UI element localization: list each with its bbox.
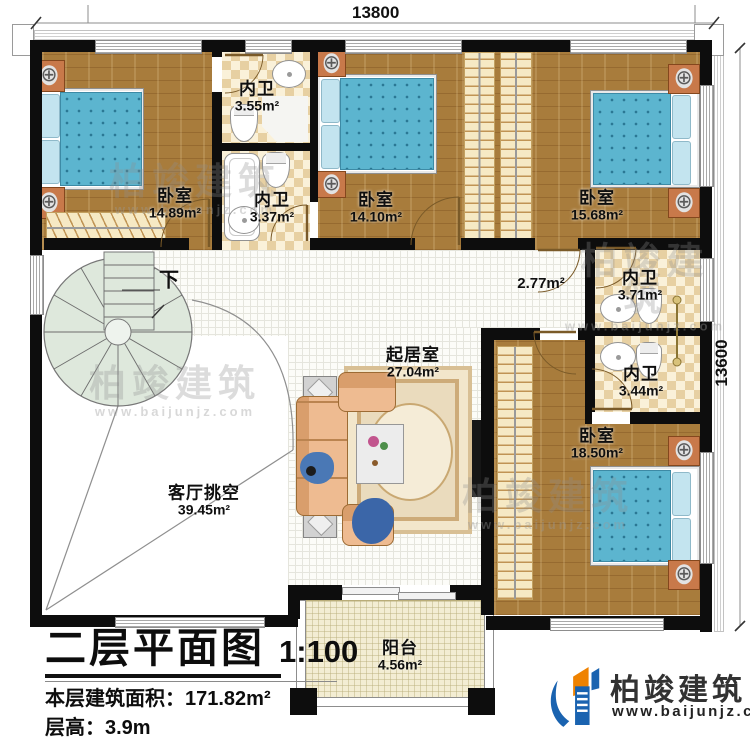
nightstand [668,64,700,94]
room-name: 卧室 [350,192,402,210]
plan-title: 二层平面图 [45,628,265,669]
wall [595,328,700,336]
pillow [40,140,60,184]
sliding-door [398,592,456,600]
pillow [672,518,691,562]
room-label-balcony: 阳台 4.56m² [378,640,422,673]
room-area: 18.50m² [571,446,623,461]
mattress [593,470,671,562]
room-area: 3.44m² [619,384,663,399]
room-area: 3.55m² [235,99,279,114]
room-label-bedroom-top-center: 卧室 14.10m² [350,192,402,225]
floor-height-value: 3.9m [105,717,151,739]
room-name: 客厅挑空 [168,485,240,503]
plan-scale: 1:100 [279,635,358,669]
wall [481,328,494,615]
room-label-hallway: 2.77m² [517,276,565,292]
title-block: 二层平面图 1:100 本层建筑面积：171.82m² 层高：3.9m [45,628,358,740]
nightstand [317,171,346,198]
pillow [672,141,691,185]
wall [212,52,222,57]
wall [630,412,700,424]
window [700,258,714,322]
room-label-bedroom-top-right: 卧室 15.68m² [571,190,623,223]
wall [585,250,595,412]
room-area: 27.04m² [386,365,440,380]
room-name: 卧室 [571,428,623,446]
sliding-door [342,587,400,595]
wardrobe [500,52,532,250]
room-area: 15.68m² [571,208,623,223]
floor-height-label: 层高： [45,717,105,739]
room-area: 4.56m² [378,658,422,673]
room-label-bedroom-bottom-right: 卧室 18.50m² [571,428,623,461]
room-label-bath-right-upper: 内卫 3.71m² [618,270,662,303]
wall [296,585,342,600]
table-decor [372,460,378,466]
room-area: 14.89m² [149,206,201,221]
room-name: 起居室 [386,347,440,365]
room-name: 内卫 [250,192,294,210]
wall [44,238,189,250]
floor-area-value: 171.82m² [185,688,271,710]
nightstand [317,50,346,77]
person-head [306,466,316,476]
stair-down-label: 下 [159,271,179,292]
person-figure [300,452,334,484]
window [245,40,292,54]
wall [585,412,592,424]
room-name: 内卫 [618,270,662,288]
mattress [340,78,434,170]
pillow [40,94,60,138]
window [95,40,202,54]
floor-area-label: 本层建筑面积： [45,688,185,710]
room-name: 阳台 [378,640,422,658]
room-name: 内卫 [619,366,663,384]
wall [310,238,318,250]
mattress [593,93,671,185]
wall [288,585,300,619]
pillow [672,95,691,139]
logo-mark-icon [548,660,606,732]
window [550,618,664,631]
room-label-bath-right-lower: 内卫 3.44m² [619,366,663,399]
room-name: 卧室 [149,188,201,206]
nightstand [668,188,700,218]
balcony-post [468,688,495,715]
room-area: 3.71m² [618,288,662,303]
room-name: 卧室 [571,190,623,208]
room-label-bath-inner-mid: 内卫 3.37m² [250,192,294,225]
pillow [672,472,691,516]
wall [461,238,535,250]
wardrobe [497,346,533,600]
wall [318,238,415,250]
nightstand [668,560,700,590]
window [345,40,462,54]
window [570,40,687,54]
wall [310,52,318,202]
dimension-top-label: 13800 [352,3,399,23]
company-logo: 柏竣建筑 www.baijunjz.com [548,656,748,738]
room-label-bedroom-top-left: 卧室 14.89m² [149,188,201,221]
corridor-floor [152,250,292,336]
room-area: 14.10m² [350,210,402,225]
pillow [321,125,340,169]
table-flower-decor [368,436,379,447]
company-website: www.baijunjz.com [612,703,750,720]
wall [30,40,42,627]
room-area: 3.37m² [250,210,294,225]
wall [578,238,700,250]
room-area: 39.45m² [168,503,240,518]
wall [212,92,222,250]
room-label-void: 客厅挑空 39.45m² [168,485,240,518]
window [700,452,714,564]
room-label-living: 起居室 27.04m² [386,347,440,380]
room-label-bath-inner-top: 内卫 3.55m² [235,81,279,114]
tv [472,420,481,497]
window [700,85,714,187]
title-rule [45,674,281,678]
mattress [60,92,142,186]
window [30,255,44,315]
wall [578,328,585,340]
floorplan-canvas: 柏竣建筑 www.baijunjz.com 柏竣建筑 www.baijunjz.… [0,0,750,742]
title-rule [45,681,337,682]
dimension-right-label: 13600 [712,333,732,393]
room-area: 2.77m² [517,276,565,292]
wardrobe [464,52,495,250]
pillow [321,79,340,123]
coffee-table [356,424,404,484]
wall [222,143,310,151]
room-name: 内卫 [235,81,279,99]
table-flower-decor [380,442,388,450]
nightstand [668,436,700,466]
